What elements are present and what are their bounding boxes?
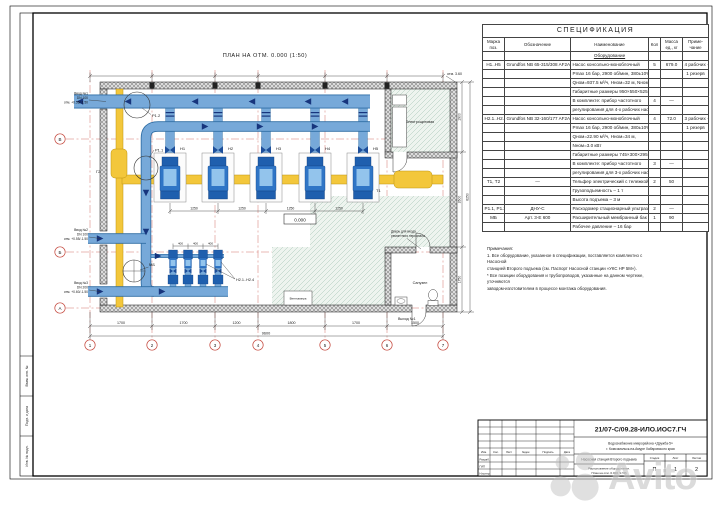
dim-total-label: 6250 xyxy=(466,193,470,201)
electrical-cabinet xyxy=(393,95,407,105)
spec-row: МБАрт. 3-Е 600Расширительный мембранный … xyxy=(483,214,709,223)
spec-cell xyxy=(649,52,661,61)
spec-cell: Н1..Н5 xyxy=(483,61,505,70)
dim-label: 1500 xyxy=(411,321,419,325)
flowmeter-label: Р1.2 xyxy=(152,113,161,118)
dim-label: 1800 xyxy=(288,321,296,325)
spec-cell xyxy=(505,187,571,196)
spec-cell xyxy=(483,106,505,115)
spec-row: Pmax 16 бар, 2900 об/мин, 380±10% В1 рез… xyxy=(483,124,709,133)
tb-drawing: План на отм. 0.000 (1:50) xyxy=(591,471,626,475)
spec-cell: Т1, Т2 xyxy=(483,178,505,187)
spec-cell: Насос консольно-моноблочный xyxy=(571,61,649,70)
spec-cell: 90 xyxy=(661,214,683,223)
spec-cell xyxy=(683,214,709,223)
spec-cell: 1 резерв xyxy=(683,124,709,133)
dim-label: 1900 xyxy=(458,113,462,121)
axis-bubble-label: А xyxy=(58,306,61,311)
dim-label: 1700 xyxy=(117,321,125,325)
spec-cell: В комплекте: прибор частотного xyxy=(571,160,649,169)
spec-row: Qном=22.90 м³/ч, Hном=34 м, xyxy=(483,133,709,142)
tb-header-cell: Кол. xyxy=(493,450,499,454)
hoist-label: Т1 xyxy=(376,188,381,193)
spec-cell xyxy=(683,223,709,232)
tb-project: Водоснабжение микрорайона «Дружба-5» xyxy=(608,442,673,446)
tb-header-cell: Подпись xyxy=(542,450,554,454)
tb-stage-label: Стадия xyxy=(650,456,660,460)
tank-label: МБ xyxy=(149,262,155,267)
pump-label: Н2 xyxy=(228,146,234,151)
spec-cell: Высота подъема – 3 м xyxy=(571,196,649,205)
spec-cell xyxy=(661,106,683,115)
spec-cell xyxy=(505,88,571,97)
spec-cell xyxy=(649,142,661,151)
spec-cell: Grundfos NB 65-315/308 AF2ABQQE xyxy=(505,61,571,70)
spec-cell xyxy=(505,97,571,106)
plan-title: ПЛАН НА ОТМ. 0.000 (1:50) xyxy=(223,53,308,59)
spec-cell xyxy=(683,151,709,160)
door-note: ремонтного персонала xyxy=(391,234,425,238)
spec-cell xyxy=(649,169,661,178)
callout-line: Ввод №2 xyxy=(74,228,88,232)
spec-cell: 50 xyxy=(661,178,683,187)
spec-cell xyxy=(649,88,661,97)
callout-line: Ввод №3 xyxy=(74,281,88,285)
spec-cell: регулирования для 4-х рабочих насосов xyxy=(571,106,649,115)
spec-cell: Grundfos NB 32-160/177 AF2ABQQE xyxy=(505,115,571,124)
dim-label: 400 xyxy=(178,242,183,246)
spec-cell: 4 xyxy=(649,97,661,106)
spec-cell: 72.0 xyxy=(661,115,683,124)
callout-line: отм. +0.60/-1.50 xyxy=(64,290,88,294)
spec-cell: ДНУ-С xyxy=(505,205,571,214)
spec-cell xyxy=(505,106,571,115)
dim-label: 400 xyxy=(208,242,213,246)
spec-cell: 4 xyxy=(649,115,661,124)
spec-cell xyxy=(683,169,709,178)
dim-label: 1750 xyxy=(458,276,462,284)
spec-cell xyxy=(649,151,661,160)
spec-col-header: Кол xyxy=(649,38,661,52)
spec-cell xyxy=(661,79,683,88)
spec-row: Грузоподъемность – 1 т xyxy=(483,187,709,196)
spec-cell: Насос консольно-моноблочный xyxy=(571,115,649,124)
spec-cell: 2 xyxy=(649,205,661,214)
electrical-cabinet xyxy=(393,107,407,147)
spec-cell xyxy=(483,196,505,205)
spec-cell xyxy=(505,196,571,205)
spec-cell: 4 рабочих + xyxy=(683,61,709,70)
spec-title: СПЕЦИФИКАЦИЯ xyxy=(483,25,709,38)
spec-cell xyxy=(483,124,505,133)
callout-line: Ввод №1 xyxy=(74,92,88,96)
room-label-vent: Венткамера xyxy=(290,297,307,301)
tb-role: Разраб. xyxy=(480,458,490,462)
spec-row: Nном=3.0 кВт xyxy=(483,142,709,151)
spec-cell xyxy=(683,106,709,115)
dim-label: 2600 xyxy=(458,196,462,204)
spec-cell xyxy=(483,70,505,79)
spec-cell xyxy=(505,70,571,79)
spec-cell xyxy=(661,169,683,178)
spec-cell xyxy=(683,97,709,106)
spec-cell: Н2.1..Н2.4 xyxy=(483,115,505,124)
spec-cell xyxy=(505,169,571,178)
spec-row: Н2.1..Н2.4Grundfos NB 32-160/177 AF2ABQQ… xyxy=(483,115,709,124)
pipe-callouts: Ввод №1 DN 100 отм. +0.55/-1.50 Ввод №2 … xyxy=(64,92,88,295)
spec-col-header: Марка поз. xyxy=(483,38,505,52)
tb-header-cell: №док. xyxy=(522,450,530,454)
dim-label: 1700 xyxy=(180,321,188,325)
spec-cell: Nном=3.0 кВт xyxy=(571,142,649,151)
booster-group-label: Н2.1..Н2.4 xyxy=(236,278,254,282)
spec-row: регулирования для 4-х рабочих насосов xyxy=(483,106,709,115)
spec-cell: Арт. 3-Е 600 xyxy=(505,214,571,223)
spec-cell: 679.0 xyxy=(661,61,683,70)
spec-cell: Pmax 16 бар, 2900 об/мин, 380±10% В xyxy=(571,70,649,79)
spec-cell: 5 xyxy=(649,61,661,70)
spec-cell xyxy=(661,70,683,79)
axis-bubble-label: В xyxy=(58,137,61,142)
spec-cell xyxy=(505,223,571,232)
side-stamp-label: Инв. № подл. xyxy=(25,445,29,466)
spec-cell xyxy=(661,142,683,151)
spec-col-header: Обозначение xyxy=(505,38,571,52)
spec-cell xyxy=(649,133,661,142)
spec-row: Габаритные размеры 745×300×295 мм xyxy=(483,151,709,160)
spec-cell xyxy=(683,133,709,142)
instruments xyxy=(123,92,158,282)
axis-bubble-label: Б xyxy=(59,250,62,255)
tb-sheet-label: Лист xyxy=(672,456,679,460)
spec-cell xyxy=(649,106,661,115)
spec-cell: — xyxy=(505,178,571,187)
spec-cell xyxy=(483,160,505,169)
spec-cell xyxy=(661,52,683,61)
spec-cell xyxy=(683,187,709,196)
callout-line: отм. +0.55/-1.50 xyxy=(64,101,88,105)
tb-project: г. Комсомольск-на-Амуре Хабаровского кра… xyxy=(606,447,674,451)
elevation-label: 0.000 xyxy=(294,218,306,223)
spec-cell xyxy=(505,124,571,133)
spec-cell: 3 рабочих + xyxy=(683,115,709,124)
callout-line: DN 200 xyxy=(77,286,88,290)
toilet xyxy=(429,290,438,301)
spec-cell: Расходомер стационарный ультразвуковой xyxy=(571,205,649,214)
tb-sheets-label: Листов xyxy=(692,456,702,460)
tb-header-cell: Лист xyxy=(506,450,513,454)
tb-header-cell: Дата xyxy=(564,450,571,454)
spec-cell xyxy=(483,223,505,232)
spec-row: регулирования для 3-х рабочих насосов xyxy=(483,169,709,178)
title-block: Изм. Кол. Лист №док. Подпись Дата Разраб… xyxy=(478,420,707,476)
spec-cell: МБ xyxy=(483,214,505,223)
spec-cell xyxy=(661,196,683,205)
spec-cell: 2 xyxy=(649,178,661,187)
flowmeter-label: Р1.1 xyxy=(155,148,164,153)
spec-cell xyxy=(649,124,661,133)
pump-label: Н5 xyxy=(373,146,379,151)
spec-cell xyxy=(661,223,683,232)
spec-cell xyxy=(683,52,709,61)
spec-row: В комплекте: прибор частотного4— xyxy=(483,97,709,106)
spec-cell xyxy=(505,151,571,160)
dim-label: 1700 xyxy=(352,321,360,325)
spec-cell xyxy=(683,88,709,97)
dim-label: 1250 xyxy=(335,207,343,211)
tb-object: Насосная станция Второго подъема xyxy=(581,458,636,462)
spec-cell xyxy=(649,70,661,79)
tb-doc-number: 21/07-С/09.28-ИЛО.ИОС7.ГЧ xyxy=(595,427,687,434)
spec-cell xyxy=(483,187,505,196)
g2-unit xyxy=(111,149,127,178)
spec-cell xyxy=(683,178,709,187)
room-label-electrical: Электрощитовая xyxy=(406,120,434,124)
spec-cell xyxy=(683,205,709,214)
spec-cell xyxy=(505,133,571,142)
dim-label: 1250 xyxy=(287,207,295,211)
spec-cell: Р1.1, Р1.2 xyxy=(483,205,505,214)
dim-label: 1200 xyxy=(233,321,241,325)
room-label-bathroom: Санузел xyxy=(413,281,428,285)
spec-cell xyxy=(483,88,505,97)
side-stamp-label: Взам. инв. № xyxy=(25,365,29,386)
spec-row: Рабочее давление – 16 бар xyxy=(483,223,709,232)
spec-col-header: Масса ед., кг xyxy=(661,38,683,52)
spec-cell: Рабочее давление – 16 бар xyxy=(571,223,649,232)
spec-cell xyxy=(683,142,709,151)
spec-cell: Грузоподъемность – 1 т xyxy=(571,187,649,196)
spec-row: Н1..Н5Grundfos NB 65-315/308 AF2ABQQEНас… xyxy=(483,61,709,70)
callout-line: DN 100 xyxy=(77,233,88,237)
tb-stage-value: П xyxy=(653,467,657,473)
spec-cell xyxy=(483,142,505,151)
spec-col-header: Приме- чание xyxy=(683,38,709,52)
callout-line: DN 100 xyxy=(77,96,88,100)
spec-cell xyxy=(483,151,505,160)
drawing-sheet: Взам. инв. № Подп. и дата Инв. № подл. П… xyxy=(0,0,720,509)
hoist-trolley xyxy=(394,171,432,188)
spec-cell: Qном=937.5 м³/ч, Hном=32 м, Nном=90 кВт xyxy=(571,79,649,88)
spec-cell xyxy=(483,52,505,61)
spec-cell: Qном=22.90 м³/ч, Hном=34 м, xyxy=(571,133,649,142)
spec-cell: В комплекте: прибор частотного xyxy=(571,97,649,106)
spec-cell xyxy=(649,196,661,205)
spec-cell xyxy=(505,52,571,61)
spec-cell: Pmax 16 бар, 2900 об/мин, 380±10% В xyxy=(571,124,649,133)
spec-row: Т1, Т2—Тельфер электрический с тележкой2… xyxy=(483,178,709,187)
spec-cell xyxy=(483,79,505,88)
spec-cell: — xyxy=(661,160,683,169)
door-note: Дверь для входа xyxy=(391,230,416,234)
spec-row: Высота подъема – 3 м xyxy=(483,196,709,205)
spec-cell: Оборудование xyxy=(571,52,649,61)
callout-line: отм. +0.55/-1.50 xyxy=(64,237,88,241)
spec-cell: 1 резерв xyxy=(683,70,709,79)
spec-cell xyxy=(661,88,683,97)
pump-label: Н3 xyxy=(276,146,282,151)
spec-cell xyxy=(649,79,661,88)
spec-cell xyxy=(683,79,709,88)
spec-cell: — xyxy=(661,205,683,214)
spec-cell: Габаритные размеры 745×300×295 мм xyxy=(571,151,649,160)
spec-cell xyxy=(683,160,709,169)
spec-cell: 1 xyxy=(649,214,661,223)
spec-row: Габаритные размеры 950×550×525 мм xyxy=(483,88,709,97)
spec-row: Qном=937.5 м³/ч, Hном=32 м, Nном=90 кВт xyxy=(483,79,709,88)
tb-role: ГИП xyxy=(480,465,486,469)
spec-cell xyxy=(483,97,505,106)
tb-sheet-value: 1 xyxy=(674,467,677,473)
tb-header-cell: Изм. xyxy=(481,450,487,454)
side-stamp-label: Подп. и дата xyxy=(25,406,29,426)
spec-cell xyxy=(661,151,683,160)
specification-table: СПЕЦИФИКАЦИЯ Марка поз. Обозначение Наим… xyxy=(482,24,709,232)
spec-cell xyxy=(661,133,683,142)
spec-row: Pmax 16 бар, 2900 об/мин, 380±10% В1 рез… xyxy=(483,70,709,79)
spec-cell: Тельфер электрический с тележкой xyxy=(571,178,649,187)
tb-sheets-value: 2 xyxy=(695,467,698,473)
pump-label: Н4 xyxy=(325,146,331,151)
dim-label: 400 xyxy=(193,242,198,246)
spec-cell xyxy=(505,79,571,88)
notes-block: Примечания: 1. Все оборудование, указанн… xyxy=(487,246,655,293)
pump-label: Н1 xyxy=(180,146,186,151)
spec-cell xyxy=(483,169,505,178)
spec-cell xyxy=(661,124,683,133)
spec-cell xyxy=(505,160,571,169)
spec-cell: Расширительный мембранный бак xyxy=(571,214,649,223)
spec-cell xyxy=(649,187,661,196)
spec-row: В комплекте: прибор частотного3— xyxy=(483,160,709,169)
spec-cell xyxy=(683,196,709,205)
spec-col-header: Наименование xyxy=(571,38,649,52)
spec-cell: 3 xyxy=(649,160,661,169)
tb-drawing: Расположение оборудования. xyxy=(588,467,630,471)
spec-cell: — xyxy=(661,97,683,106)
spec-cell xyxy=(649,223,661,232)
dim-label: 1250 xyxy=(190,207,198,211)
spec-cell xyxy=(661,187,683,196)
spec-table-body: ОборудованиеН1..Н5Grundfos NB 65-315/308… xyxy=(483,52,709,232)
spec-cell xyxy=(483,133,505,142)
tb-role: Н.контр. xyxy=(480,472,491,476)
spec-cell: Габаритные размеры 950×550×525 мм xyxy=(571,88,649,97)
spec-row: Р1.1, Р1.2ДНУ-СРасходомер стационарный у… xyxy=(483,205,709,214)
dim-total-label: 9600 xyxy=(262,332,270,336)
roof-note: отм. 3.60 xyxy=(447,72,462,76)
spec-section-row: Оборудование xyxy=(483,52,709,61)
spec-cell: регулирования для 3-х рабочих насосов xyxy=(571,169,649,178)
dim-label: 1250 xyxy=(238,207,246,211)
spec-cell xyxy=(505,142,571,151)
